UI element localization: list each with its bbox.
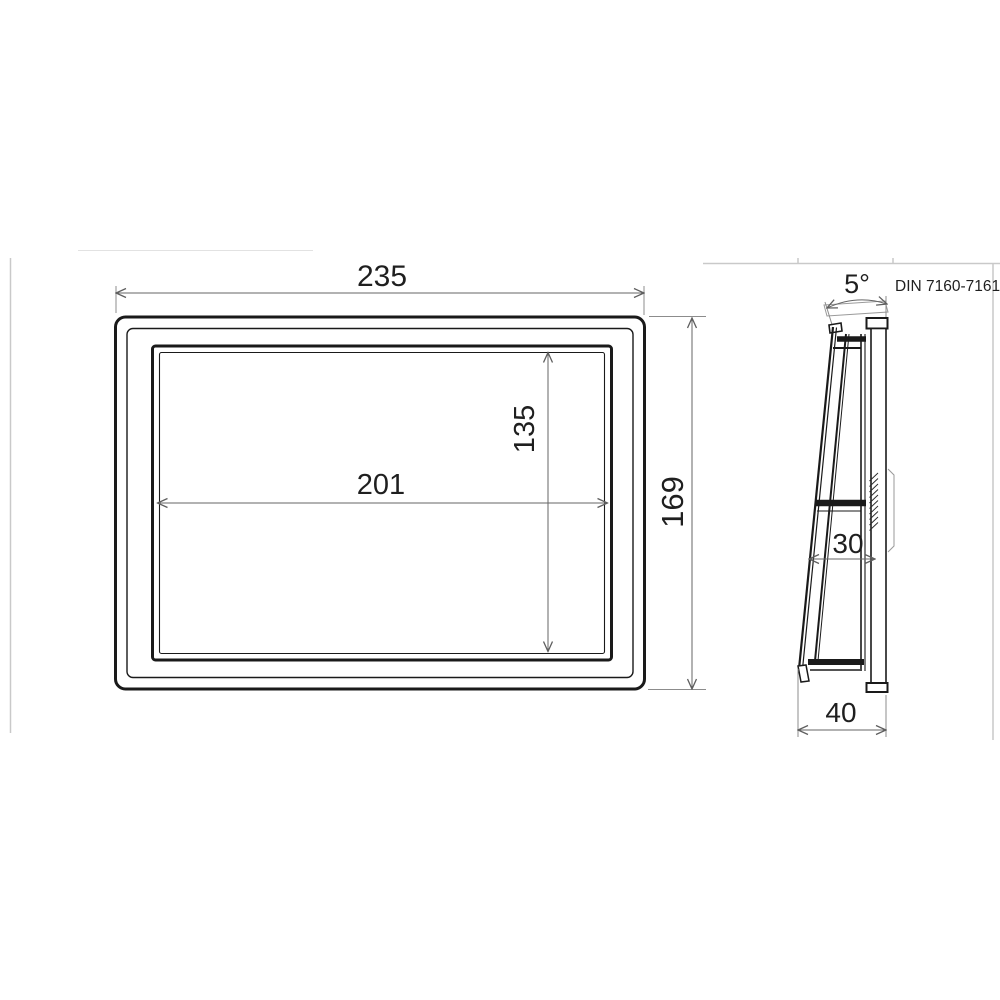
outer-height-dimension: 169 bbox=[648, 317, 706, 690]
technical-drawing-page: 235 169 201 135 bbox=[0, 0, 1000, 1000]
opening-width-label: 201 bbox=[357, 469, 405, 501]
overall-depth-label: 40 bbox=[825, 697, 856, 728]
top-face-outline bbox=[824, 301, 888, 316]
outer-width-dimension: 235 bbox=[116, 260, 644, 315]
back-plate-top-cap bbox=[867, 318, 888, 329]
opening-height-label: 135 bbox=[509, 405, 541, 453]
outer-height-label: 169 bbox=[655, 476, 690, 528]
inner-depth-label: 30 bbox=[832, 528, 863, 559]
dimension-drawing: 235 169 201 135 bbox=[0, 0, 1000, 1000]
back-plate-bottom-cap bbox=[867, 683, 888, 692]
front-panel-bottom-cap bbox=[798, 665, 809, 682]
mount-bracket-tab bbox=[888, 469, 894, 552]
outer-width-label: 235 bbox=[357, 260, 407, 293]
front-view: 235 169 201 135 bbox=[116, 260, 707, 690]
frame-cross-members bbox=[808, 339, 866, 670]
back-plate bbox=[867, 318, 895, 692]
back-plate-body bbox=[871, 329, 886, 684]
din-standard-note: DIN 7160-7161 bbox=[895, 278, 1000, 295]
tilt-angle-label: 5° bbox=[844, 269, 870, 299]
side-view: 5° DIN 7160-7161 bbox=[798, 269, 1000, 737]
